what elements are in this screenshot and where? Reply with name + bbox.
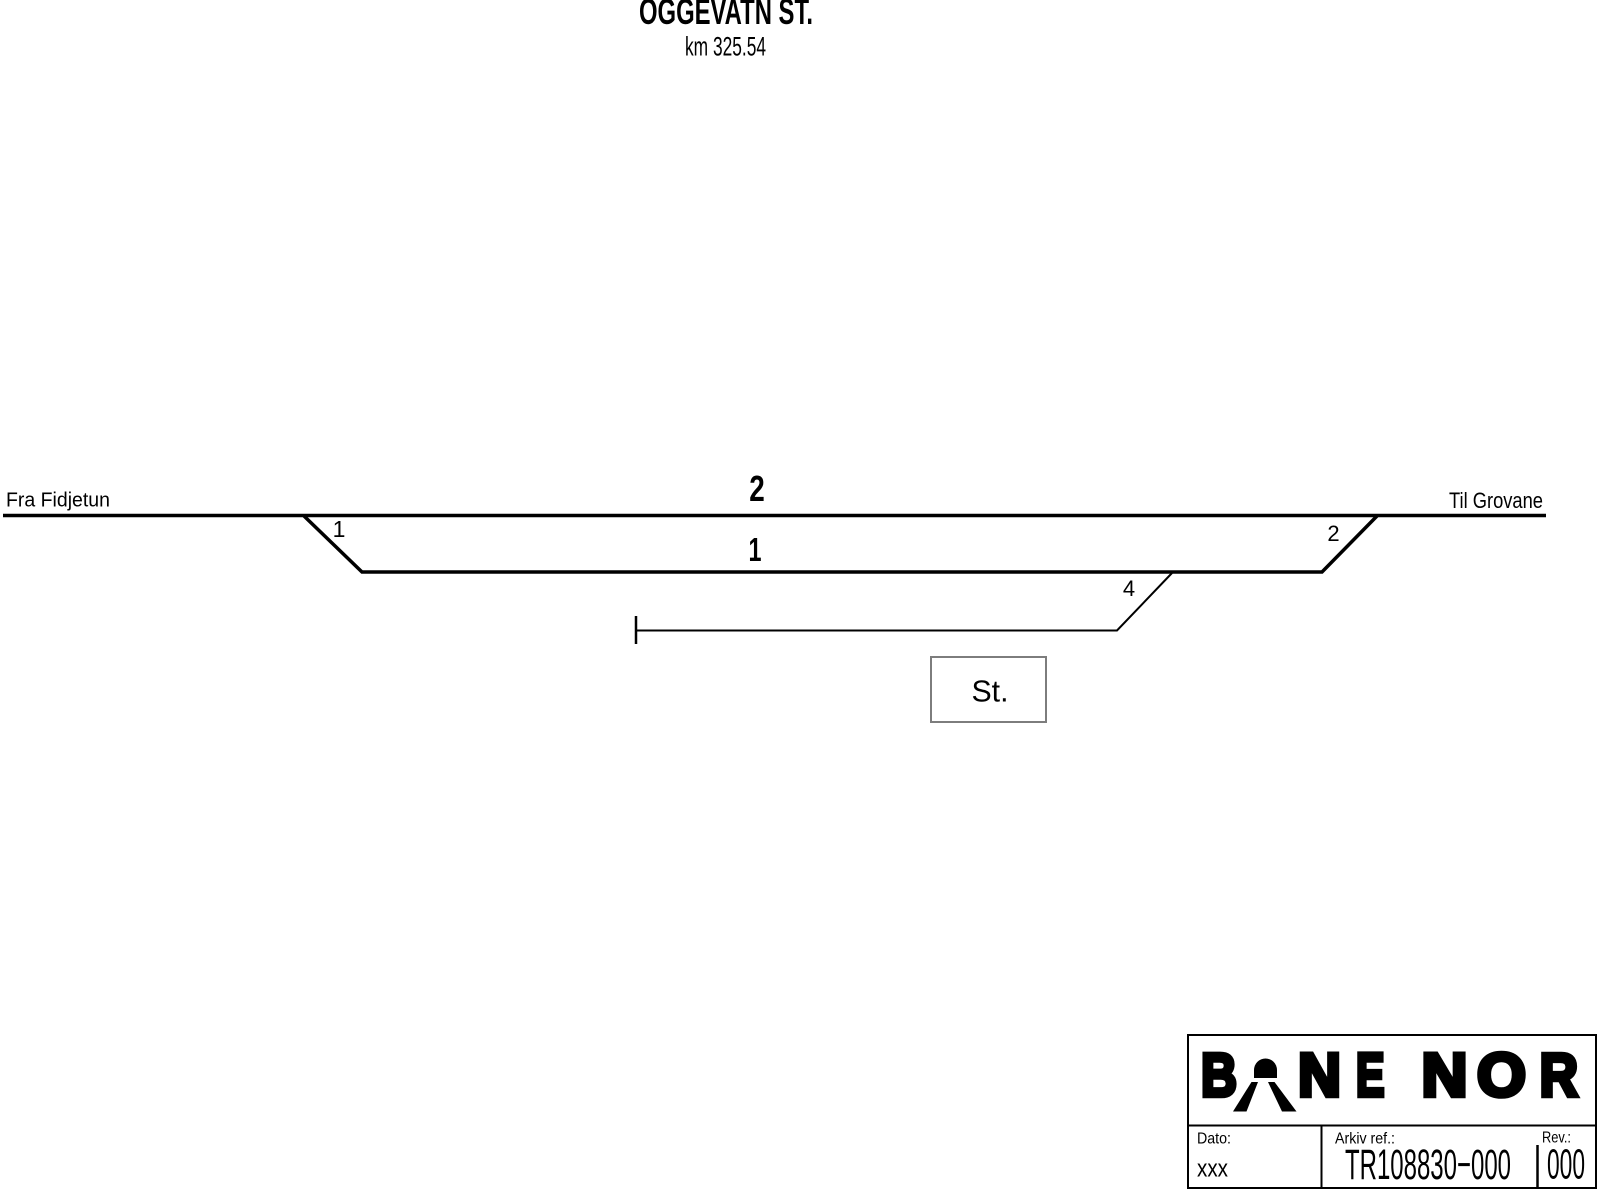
svg-text:B: B xyxy=(1201,1041,1237,1109)
svg-text:2: 2 xyxy=(749,468,765,509)
svg-text:2: 2 xyxy=(1327,521,1339,546)
svg-text:TR108830−000: TR108830−000 xyxy=(1345,1141,1511,1189)
svg-text:1: 1 xyxy=(333,516,346,542)
svg-text:Fra Fidjetun: Fra Fidjetun xyxy=(6,490,110,512)
svg-text:xxx: xxx xyxy=(1197,1156,1228,1183)
svg-text:000: 000 xyxy=(1547,1141,1585,1189)
svg-text:N: N xyxy=(1298,1041,1341,1109)
svg-text:1: 1 xyxy=(749,531,762,568)
svg-text:Dato:: Dato: xyxy=(1197,1131,1231,1148)
svg-text:E: E xyxy=(1356,1041,1385,1109)
svg-text:R: R xyxy=(1540,1041,1578,1109)
svg-text:Til Grovane: Til Grovane xyxy=(1449,488,1543,513)
svg-text:OGGEVATN ST.: OGGEVATN ST. xyxy=(639,0,813,32)
svg-text:4: 4 xyxy=(1123,576,1135,601)
svg-text:N: N xyxy=(1422,1041,1468,1109)
svg-text:km 325.54: km 325.54 xyxy=(685,32,766,62)
svg-text:St.: St. xyxy=(972,674,1009,709)
svg-text:O: O xyxy=(1477,1041,1526,1109)
